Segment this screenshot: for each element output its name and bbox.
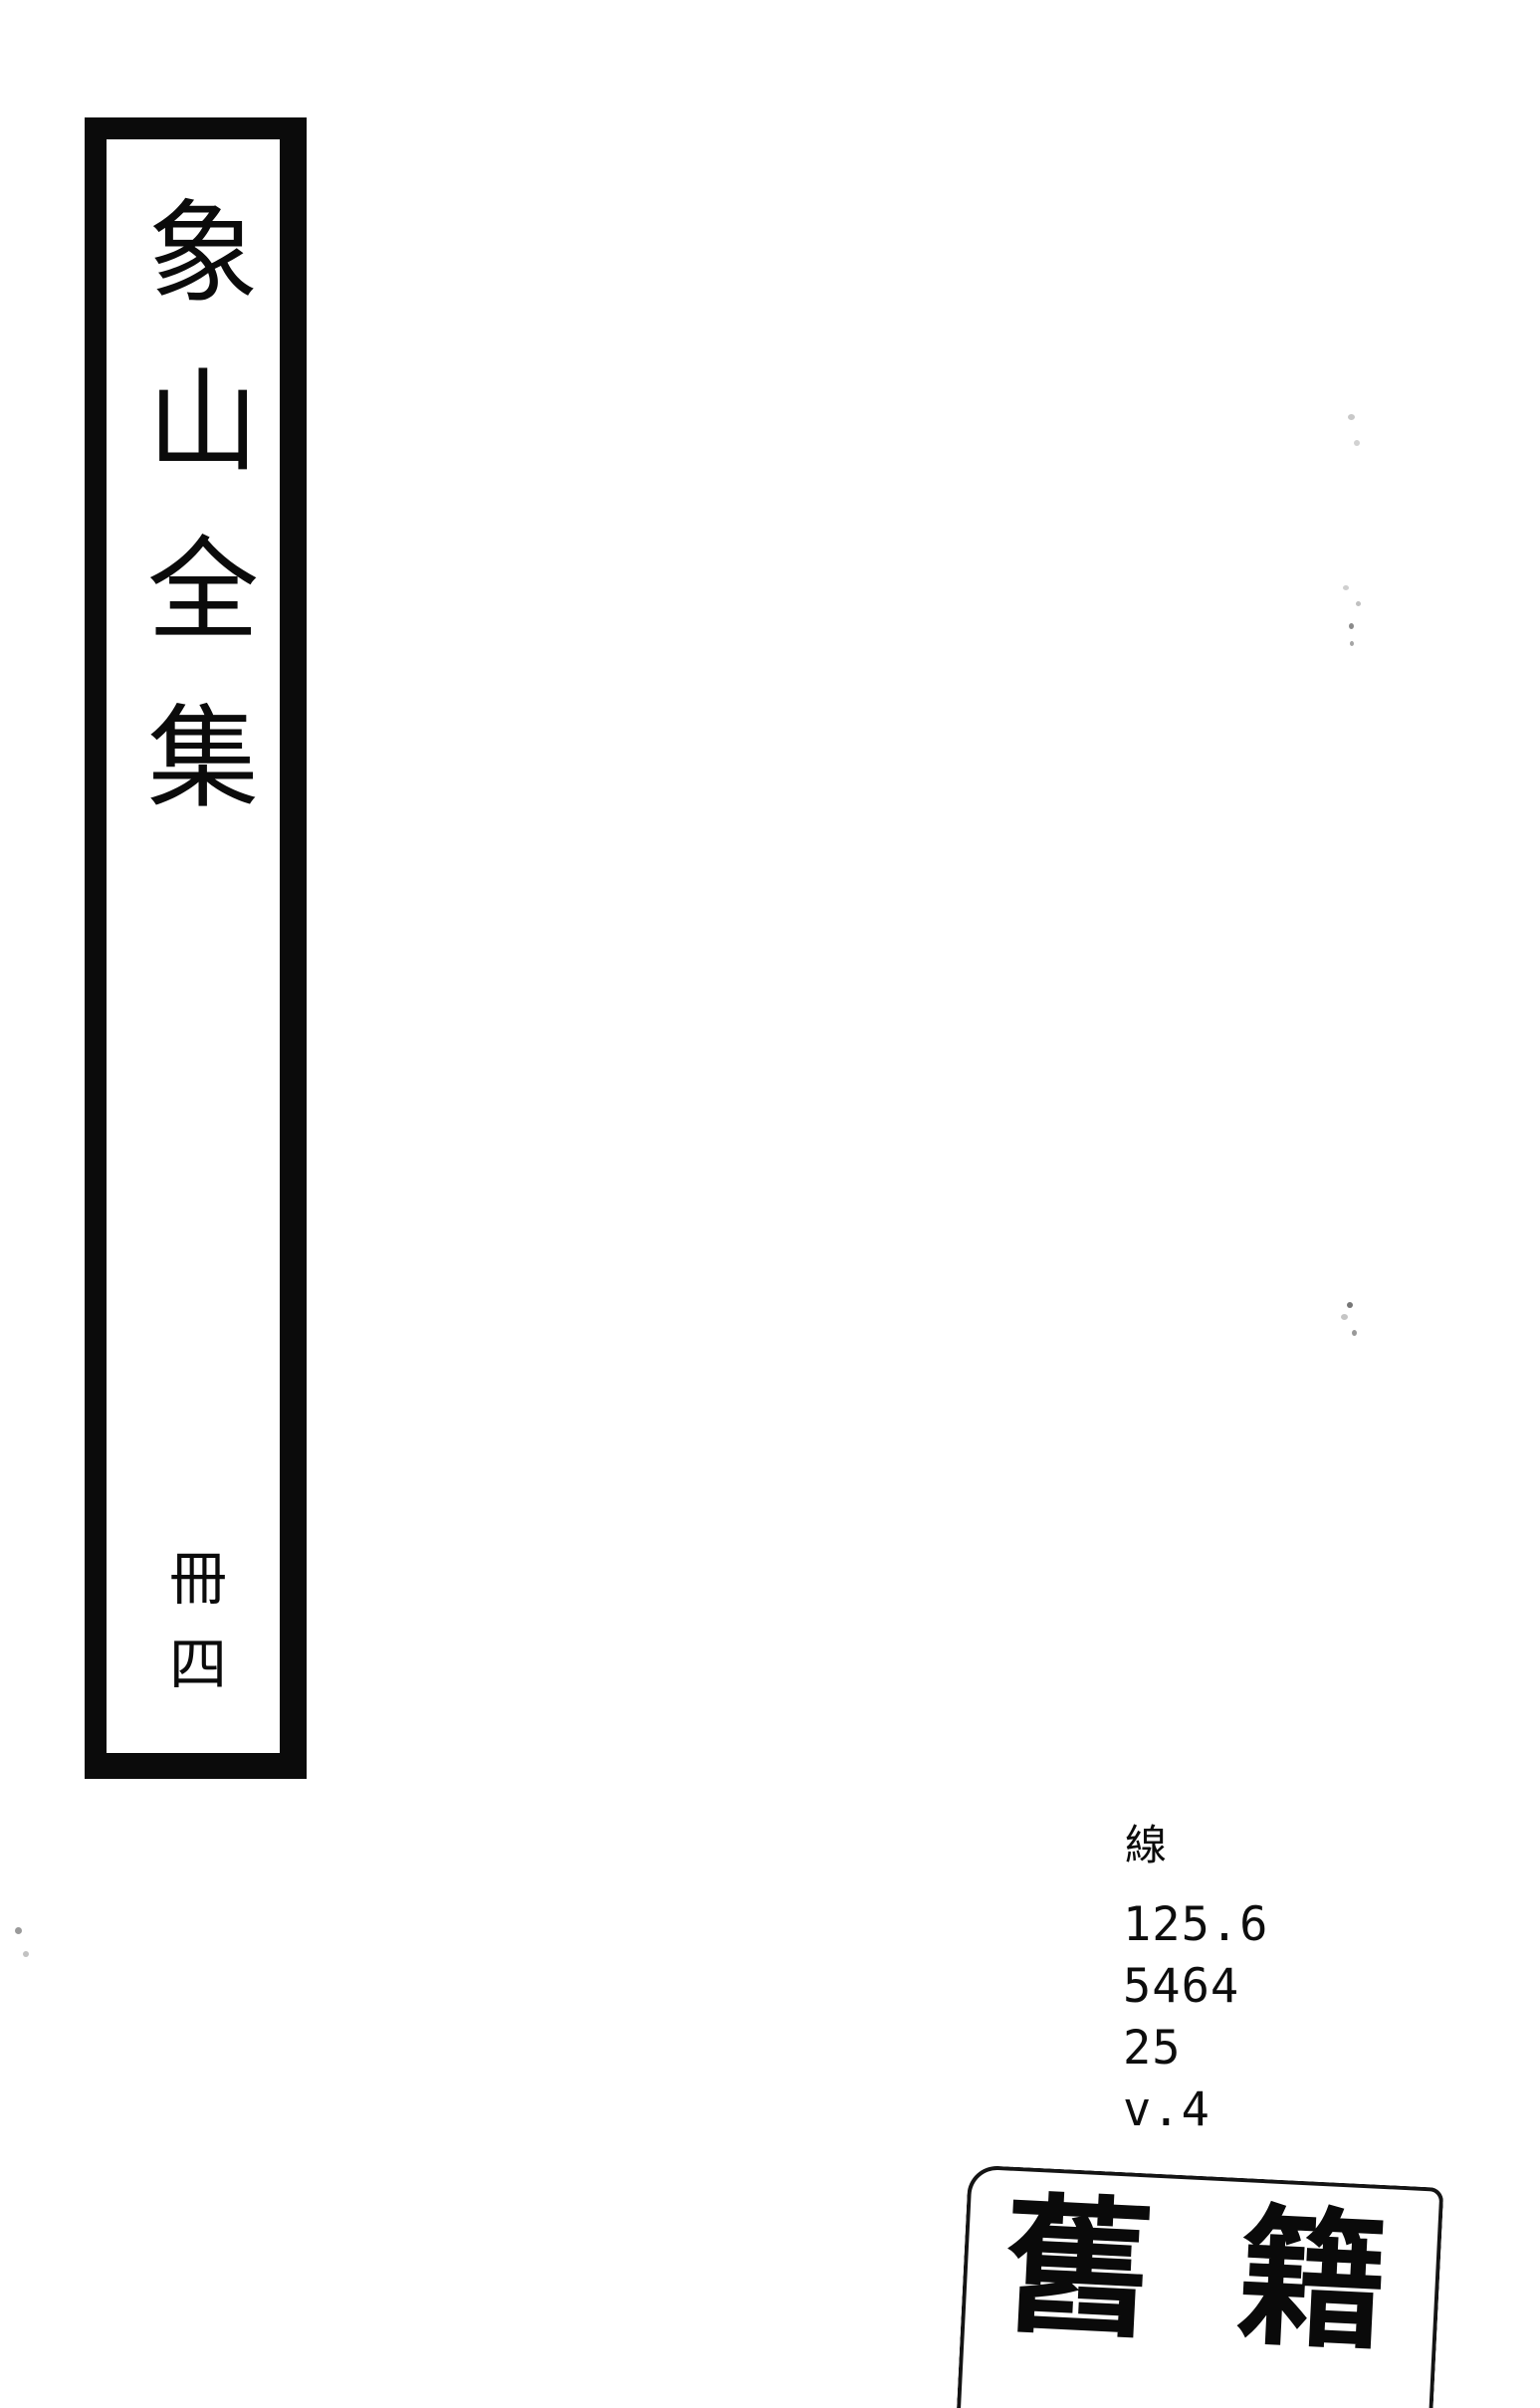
call-number-line-1: 125.6 — [1123, 1894, 1268, 1956]
scan-speckle — [1343, 585, 1349, 590]
stamp-character-right: 籍 — [1230, 2202, 1391, 2408]
call-number-line-3: 25 — [1123, 2018, 1268, 2080]
volume-label: 冊四 — [164, 1548, 222, 1719]
book-title-vertical: 象山全集 — [137, 194, 249, 867]
scanned-book-cover: 象山全集 冊四 線 125.6 5464 25 v.4 舊 籍 — [0, 0, 1540, 2408]
scan-speckle — [15, 1927, 22, 1934]
scan-speckle — [1354, 440, 1360, 446]
call-number-line-4: v.4 — [1123, 2080, 1268, 2141]
scan-speckle — [1348, 414, 1355, 420]
call-number-classification: 線 — [1125, 1825, 1268, 1866]
scan-speckle — [1349, 623, 1354, 629]
scan-speckle — [1356, 601, 1361, 606]
library-call-number: 線 125.6 5464 25 v.4 — [1123, 1825, 1268, 2141]
scan-speckle — [1352, 1330, 1357, 1336]
old-books-stamp: 舊 籍 — [956, 2165, 1443, 2408]
stamp-character-left: 舊 — [995, 2190, 1156, 2408]
title-label-box: 象山全集 冊四 — [85, 117, 307, 1779]
call-number-line-2: 5464 — [1123, 1956, 1268, 2018]
scan-speckle — [1350, 641, 1354, 646]
scan-speckle — [1341, 1314, 1348, 1320]
scan-speckle — [23, 1951, 29, 1957]
scan-speckle — [1347, 1302, 1353, 1308]
